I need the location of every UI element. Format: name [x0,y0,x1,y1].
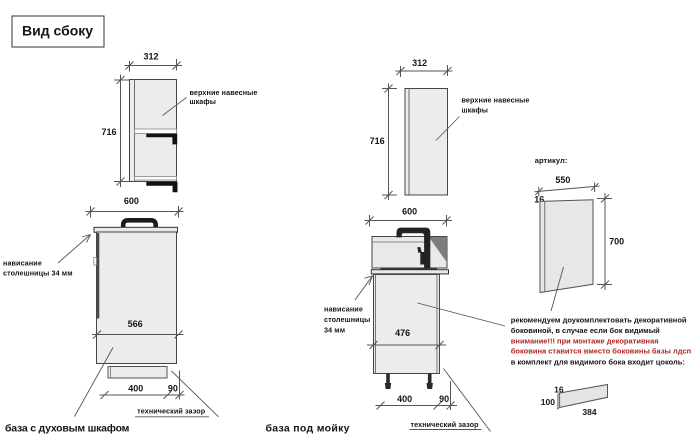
svg-text:600: 600 [124,196,139,206]
svg-text:база под мойку: база под мойку [266,422,350,434]
svg-text:716: 716 [101,127,116,137]
svg-text:384: 384 [582,407,596,417]
svg-text:внимание!!! при монтаже декора: внимание!!! при монтаже декоративная [511,336,659,345]
svg-text:550: 550 [555,175,570,185]
svg-text:рекомендуем доукомплектовать д: рекомендуем доукомплектовать декоративно… [511,316,687,325]
svg-text:16: 16 [554,385,564,395]
svg-text:312: 312 [412,58,427,68]
svg-text:столешницы 34 мм: столешницы 34 мм [3,268,73,277]
svg-text:столешницы: столешницы [324,315,370,324]
svg-text:в комплект для видимого бока в: в комплект для видимого бока входит цоко… [511,357,685,366]
svg-text:Вид сбоку: Вид сбоку [22,23,93,39]
svg-text:400: 400 [397,394,412,404]
svg-text:база с духовым шкафом: база с духовым шкафом [5,422,130,434]
svg-text:боковина ставится вместо боков: боковина ставится вместо боковины базы л… [511,346,691,355]
svg-text:технический зазор: технический зазор [137,407,206,416]
svg-text:600: 600 [402,207,417,217]
svg-text:верхние навесные: верхние навесные [190,88,258,97]
svg-text:34 мм: 34 мм [324,325,345,334]
svg-text:верхние навесные: верхние навесные [462,95,530,104]
svg-text:90: 90 [439,394,449,404]
svg-text:артикул:: артикул: [535,156,568,165]
svg-text:шкафы: шкафы [190,97,217,106]
svg-text:700: 700 [609,237,624,247]
svg-text:боковиной, в случае если бок в: боковиной, в случае если бок видимый [511,326,660,335]
svg-text:100: 100 [541,397,555,407]
svg-text:шкафы: шкафы [462,106,489,115]
svg-text:нависание: нависание [3,259,42,268]
svg-text:90: 90 [168,383,178,393]
svg-text:716: 716 [370,136,385,146]
svg-text:476: 476 [395,328,410,338]
svg-text:312: 312 [143,52,158,62]
svg-text:нависание: нависание [324,305,363,314]
svg-text:400: 400 [128,383,143,393]
svg-text:566: 566 [128,319,143,329]
svg-text:технический зазор: технический зазор [411,420,480,429]
